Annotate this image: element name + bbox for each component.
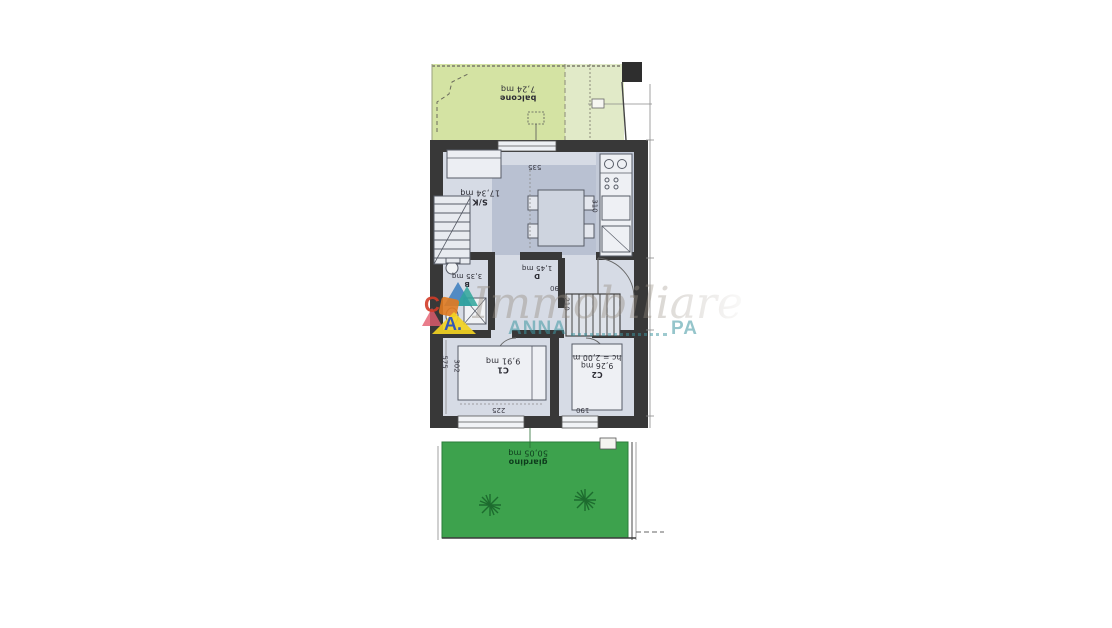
- dining-table: [528, 190, 594, 246]
- bush-icon: [574, 489, 596, 511]
- room-name: balcone: [488, 93, 548, 102]
- floorplan-scan: balcone 7,24 mq S/K 17,34 mq B 3,35 mq D…: [0, 0, 1112, 628]
- room-name: C1: [478, 365, 528, 374]
- garden-gate: [600, 438, 616, 449]
- room-area: 9,91 mq: [478, 356, 528, 365]
- dim-575: 575: [441, 355, 449, 368]
- kitchen-counter: [600, 154, 632, 256]
- room-label-bagno: B 3,35 mq: [446, 272, 488, 288]
- room-height-note: hc = 2,00 m: [568, 352, 626, 361]
- room-area: 50,05 mq: [498, 448, 558, 457]
- room-area: 3,35 mq: [446, 272, 488, 280]
- room-area: 7,24 mq: [488, 84, 548, 93]
- room-name: D: [516, 272, 558, 280]
- bathroom-door: [446, 258, 460, 263]
- room-name: giardino: [498, 457, 558, 466]
- room-area: 17,34 mq: [452, 188, 508, 197]
- room-label-balcone: balcone 7,24 mq: [488, 84, 548, 102]
- room-label-c1: C1 9,91 mq: [478, 356, 528, 374]
- toilet-icon: [446, 308, 458, 324]
- room-name: B: [446, 280, 488, 288]
- window-marker: [592, 99, 604, 108]
- dim-225: 225: [492, 406, 505, 414]
- dim-302: 302: [453, 359, 461, 372]
- dim-210: 210: [563, 297, 571, 310]
- room-label-c2: C2 9,26 mq hc = 2,00 m: [568, 352, 626, 378]
- wardrobe: [566, 294, 620, 336]
- sofa: [447, 150, 501, 178]
- bush-icon: [479, 494, 501, 516]
- dim-90: 90: [550, 284, 559, 292]
- room-name: C2: [568, 369, 626, 378]
- room-area: 9,26 mq: [568, 361, 626, 370]
- room-name: S/K: [452, 197, 508, 206]
- room-label-disimpegno: D 1,45 mq: [516, 264, 558, 280]
- dim-535: 535: [528, 163, 541, 171]
- room-label-sk: S/K 17,34 mq: [452, 188, 508, 206]
- floorplan-drawing: [0, 0, 1112, 628]
- pillar: [622, 62, 642, 82]
- room-label-giardino: giardino 50,05 mq: [498, 448, 558, 466]
- dim-310: 310: [591, 199, 599, 212]
- dim-190: 190: [576, 406, 589, 414]
- garden-area: [438, 428, 664, 540]
- room-area: 1,45 mq: [516, 264, 558, 272]
